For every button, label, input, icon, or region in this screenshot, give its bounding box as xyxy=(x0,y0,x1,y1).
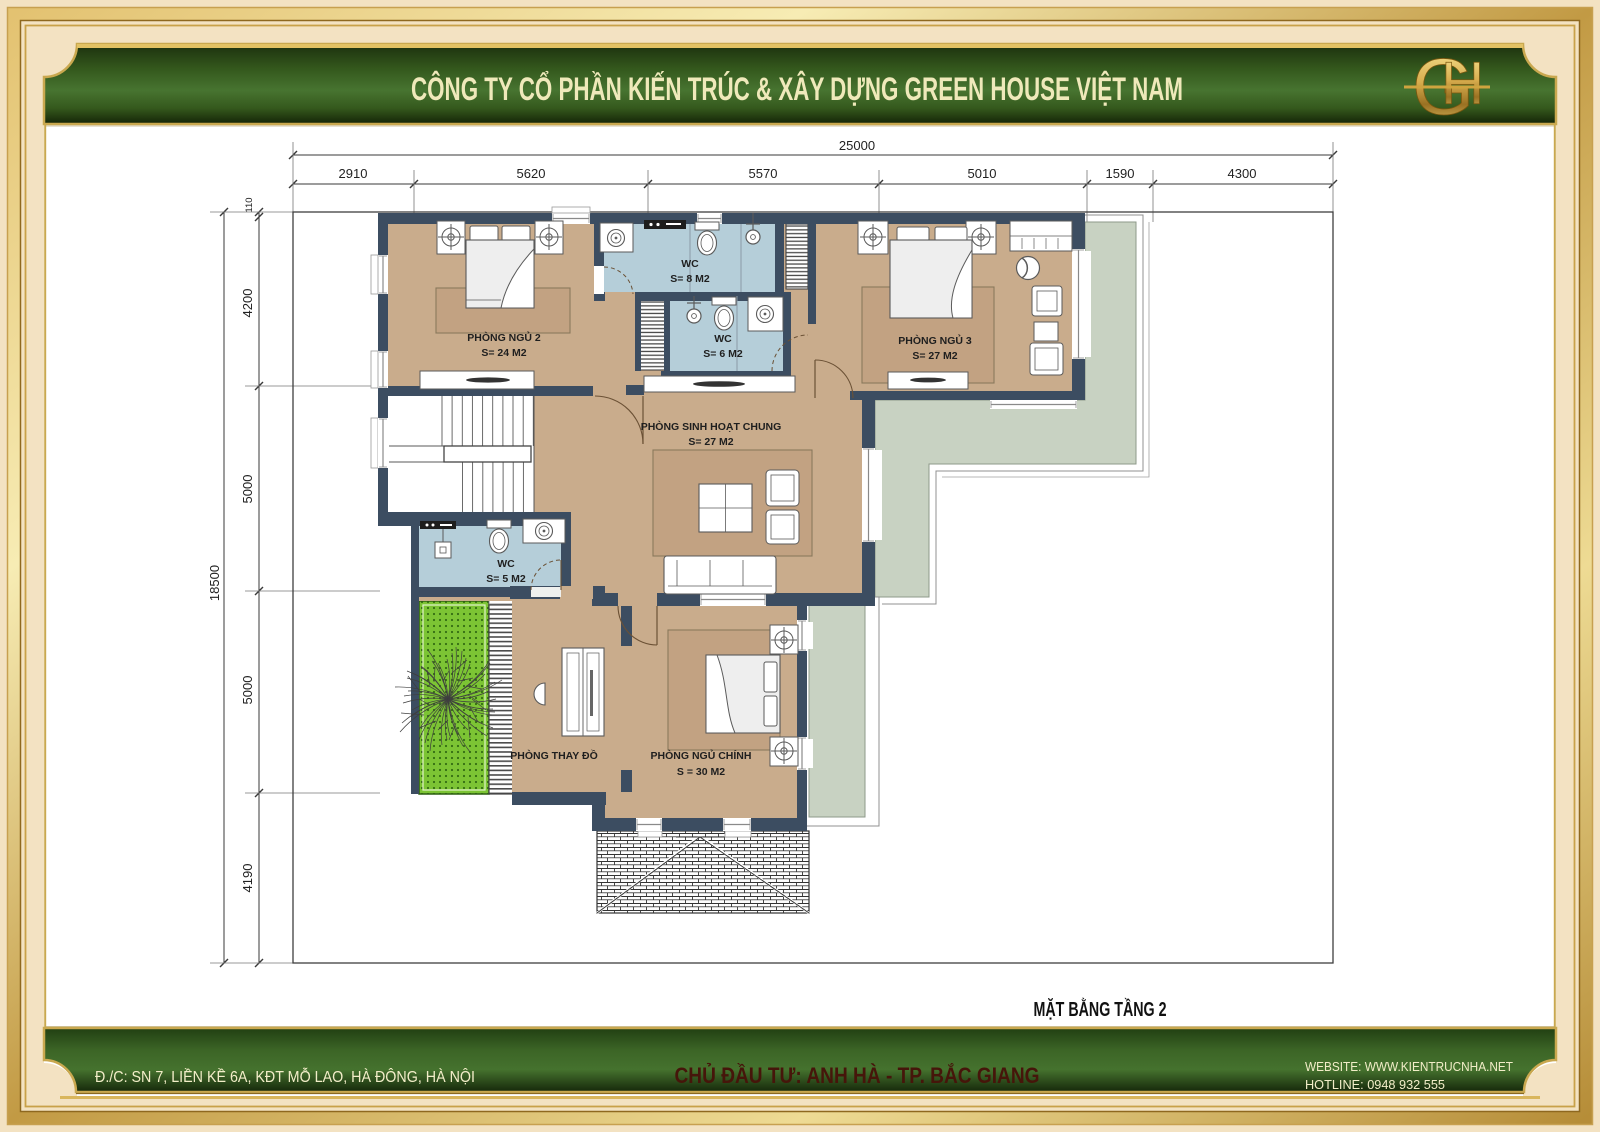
svg-text:PHÒNG NGỦ 3: PHÒNG NGỦ 3 xyxy=(898,334,972,347)
svg-text:5620: 5620 xyxy=(517,166,546,181)
svg-text:MẶT BẰNG TẦNG 2: MẶT BẰNG TẦNG 2 xyxy=(1034,997,1167,1021)
svg-text:1590: 1590 xyxy=(1106,166,1135,181)
svg-text:4190: 4190 xyxy=(240,864,255,893)
svg-text:S= 27 M2: S= 27 M2 xyxy=(688,436,733,448)
svg-text:5570: 5570 xyxy=(749,166,778,181)
svg-text:25000: 25000 xyxy=(839,138,875,153)
svg-text:2910: 2910 xyxy=(339,166,368,181)
svg-text:CÔNG TY CỔ PHẦN KIẾN TRÚC & XÂ: CÔNG TY CỔ PHẦN KIẾN TRÚC & XÂY DỰNG GRE… xyxy=(411,71,1183,107)
svg-text:S= 5 M2: S= 5 M2 xyxy=(486,573,526,585)
svg-text:S = 30 M2: S = 30 M2 xyxy=(677,766,725,778)
svg-text:CHỦ ĐẦU TƯ: ANH HÀ - TP. BẮC G: CHỦ ĐẦU TƯ: ANH HÀ - TP. BẮC GIANG xyxy=(675,1063,1040,1088)
svg-text:5000: 5000 xyxy=(240,475,255,504)
svg-text:5000: 5000 xyxy=(240,676,255,705)
svg-text:4200: 4200 xyxy=(240,289,255,318)
svg-text:PHÒNG THAY ĐỒ: PHÒNG THAY ĐỒ xyxy=(510,749,598,762)
svg-text:WC: WC xyxy=(714,333,732,345)
svg-text:WC: WC xyxy=(681,258,699,270)
svg-text:PHÒNG NGỦ 2: PHÒNG NGỦ 2 xyxy=(467,331,541,344)
svg-text:5010: 5010 xyxy=(968,166,997,181)
svg-text:18500: 18500 xyxy=(207,565,222,601)
svg-text:110: 110 xyxy=(244,197,255,212)
svg-text:S= 6 M2: S= 6 M2 xyxy=(703,348,743,360)
svg-text:HOTLINE: 0948 932 555: HOTLINE: 0948 932 555 xyxy=(1305,1078,1445,1092)
svg-text:H: H xyxy=(1441,50,1484,117)
svg-text:WC: WC xyxy=(497,558,515,570)
svg-text:PHÒNG SINH HOẠT CHUNG: PHÒNG SINH HOẠT CHUNG xyxy=(641,420,782,433)
svg-text:PHÒNG NGỦ CHÍNH: PHÒNG NGỦ CHÍNH xyxy=(651,749,752,762)
svg-text:S= 8 M2: S= 8 M2 xyxy=(670,273,710,285)
svg-text:WEBSITE: WWW.KIENTRUCNHA.NET: WEBSITE: WWW.KIENTRUCNHA.NET xyxy=(1305,1060,1513,1074)
svg-text:S= 24 M2: S= 24 M2 xyxy=(481,347,526,359)
svg-text:S= 27 M2: S= 27 M2 xyxy=(912,350,957,362)
svg-text:Đ./C: SN 7, LIỀN KỀ 6A, KĐT MỖ: Đ./C: SN 7, LIỀN KỀ 6A, KĐT MỖ LAO, HÀ Đ… xyxy=(95,1067,475,1086)
svg-text:4300: 4300 xyxy=(1228,166,1257,181)
